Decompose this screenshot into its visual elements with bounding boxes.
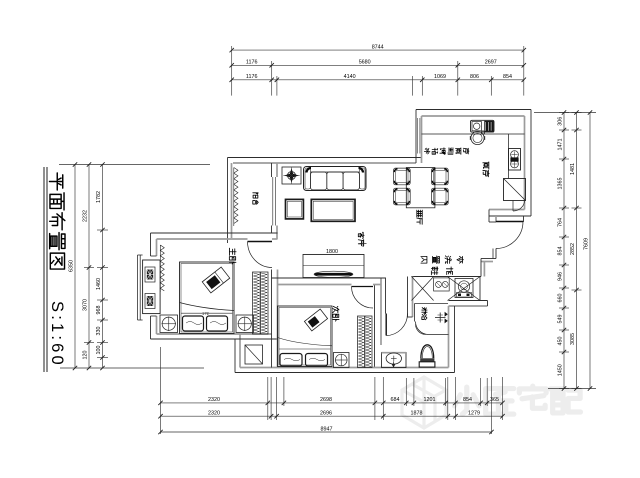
svg-text:6350: 6350 [69,260,75,272]
svg-text:2320: 2320 [208,411,220,417]
svg-text:S:1:60: S:1:60 [48,301,66,368]
svg-text:120: 120 [83,351,89,360]
svg-text:1782: 1782 [96,191,102,203]
svg-text:1460: 1460 [96,278,102,290]
svg-text:365: 365 [490,397,499,403]
svg-text:854: 854 [558,247,564,256]
svg-text:2697: 2697 [485,60,497,66]
svg-text:306: 306 [558,117,564,126]
svg-text:1176: 1176 [246,74,258,80]
svg-text:7609: 7609 [584,238,590,250]
svg-text:450: 450 [558,337,564,346]
svg-text:2232: 2232 [83,210,89,222]
svg-text:2696: 2696 [320,411,332,417]
svg-text:2320: 2320 [208,397,220,403]
svg-text:1481: 1481 [570,163,576,175]
svg-text:1878: 1878 [411,411,423,417]
svg-text:660: 660 [558,294,564,303]
svg-text:946: 946 [558,272,564,281]
svg-text:806: 806 [470,74,479,80]
svg-text:330: 330 [96,327,102,336]
svg-text:2852: 2852 [570,243,576,255]
svg-text:684: 684 [391,397,400,403]
svg-text:1471: 1471 [558,139,564,151]
svg-text:549: 549 [558,315,564,324]
svg-text:3085: 3085 [570,333,576,345]
svg-text:4140: 4140 [344,74,356,80]
svg-text:5680: 5680 [359,60,371,66]
svg-text:2698: 2698 [320,397,332,403]
svg-text:764: 764 [558,218,564,227]
svg-text:3070: 3070 [83,299,89,311]
svg-text:1800: 1800 [326,249,338,255]
svg-text:1069: 1069 [434,74,446,80]
svg-text:1279: 1279 [468,411,480,417]
svg-text:854: 854 [503,74,512,80]
svg-text:1365: 1365 [558,178,564,190]
svg-text:8947: 8947 [321,426,333,432]
svg-text:1176: 1176 [246,60,258,66]
svg-text:100: 100 [96,346,102,355]
svg-text:1201: 1201 [424,397,436,403]
svg-text:968: 968 [96,306,102,315]
svg-text:8744: 8744 [372,44,384,50]
svg-text:172: 172 [202,311,210,316]
svg-text:854: 854 [463,397,472,403]
svg-text:1450: 1450 [558,364,564,376]
